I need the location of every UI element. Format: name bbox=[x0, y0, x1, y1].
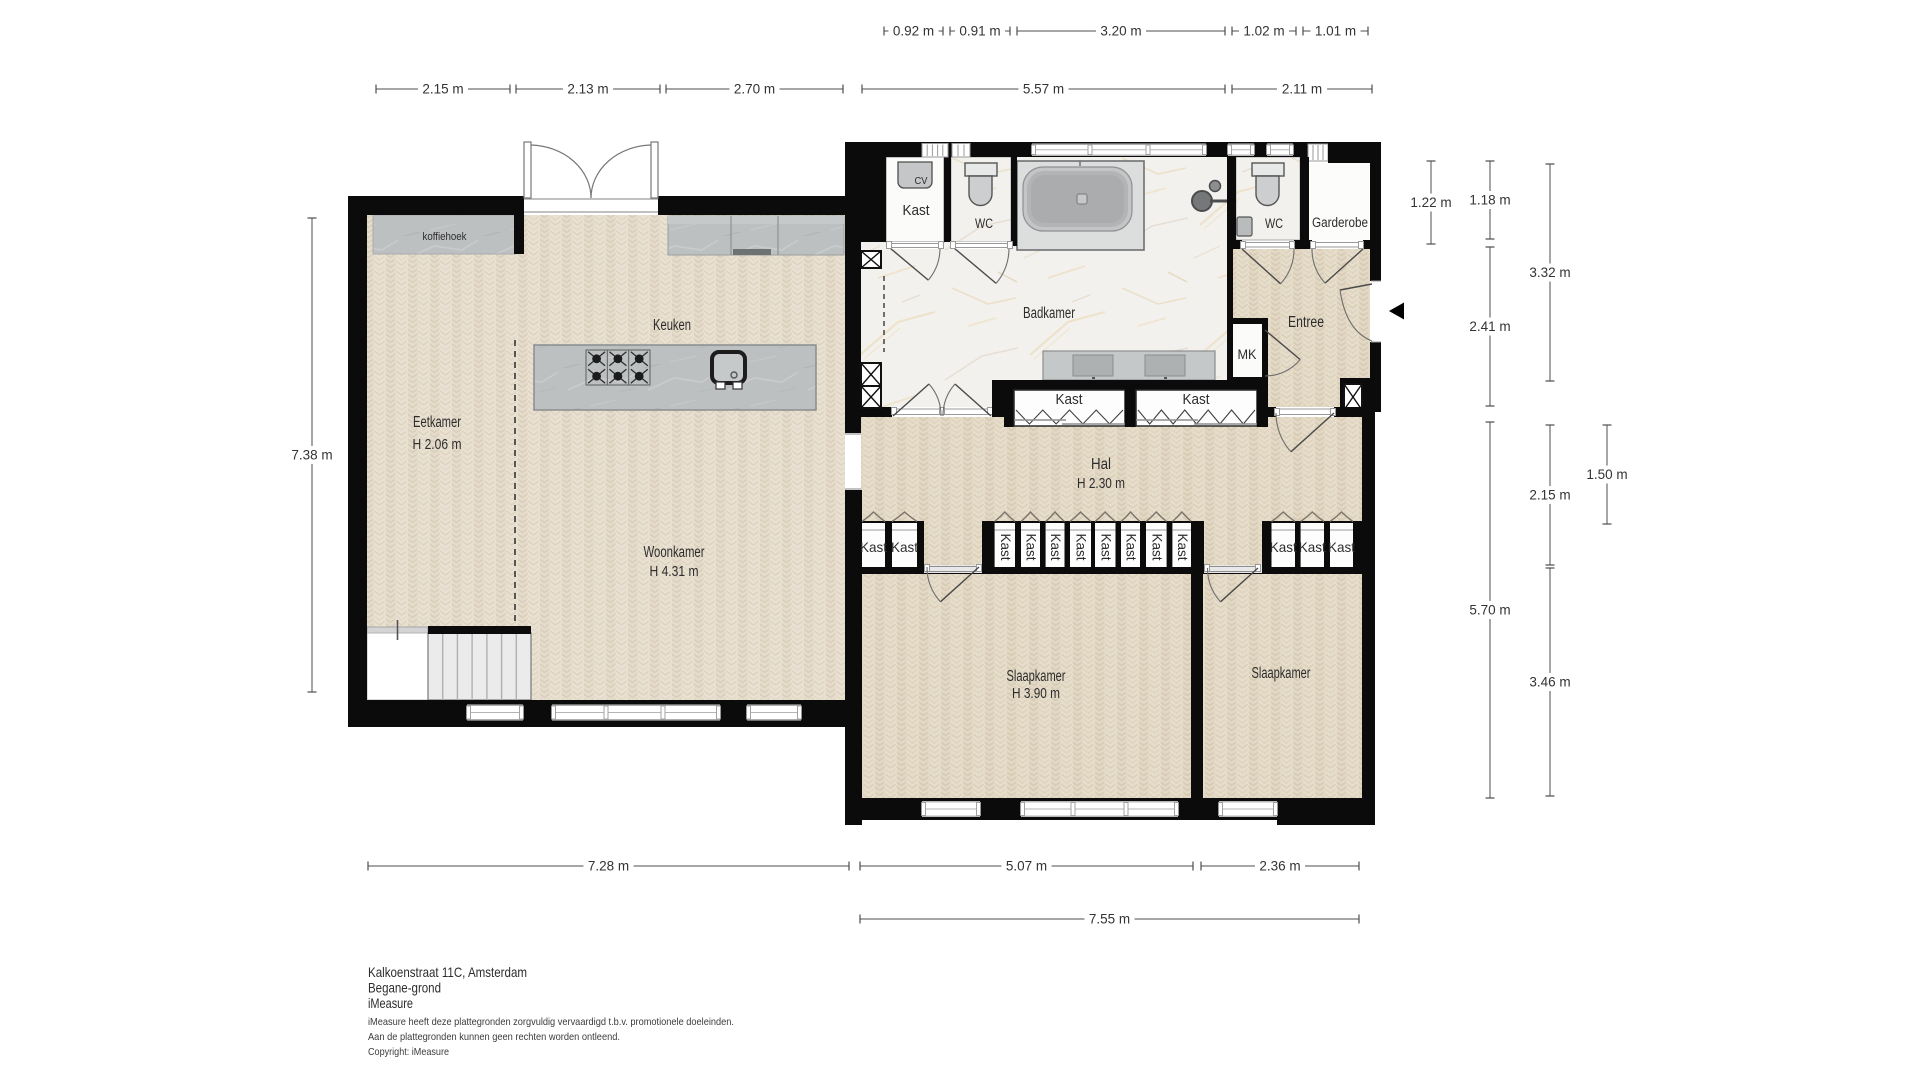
svg-text:Kast: Kast bbox=[1074, 534, 1090, 561]
svg-text:Garderobe: Garderobe bbox=[1312, 215, 1368, 230]
svg-text:2.15 m: 2.15 m bbox=[1529, 488, 1570, 503]
svg-text:iMeasure heeft deze plattegron: iMeasure heeft deze plattegronden zorgvu… bbox=[368, 1017, 734, 1028]
svg-text:Keuken: Keuken bbox=[653, 317, 691, 334]
svg-text:2.41 m: 2.41 m bbox=[1469, 319, 1510, 334]
svg-text:Copyright: iMeasure: Copyright: iMeasure bbox=[368, 1047, 449, 1058]
svg-text:2.36 m: 2.36 m bbox=[1259, 859, 1300, 874]
svg-text:Entree: Entree bbox=[1288, 314, 1324, 331]
svg-text:5.07 m: 5.07 m bbox=[1006, 859, 1047, 874]
svg-text:Kast: Kast bbox=[860, 539, 887, 555]
svg-text:Begane-grond: Begane-grond bbox=[368, 981, 441, 996]
svg-text:H 3.90 m: H 3.90 m bbox=[1012, 685, 1060, 702]
svg-text:5.70 m: 5.70 m bbox=[1469, 603, 1510, 618]
svg-text:Kast: Kast bbox=[1270, 539, 1297, 555]
svg-text:Woonkamer: Woonkamer bbox=[644, 544, 705, 561]
svg-text:Kast: Kast bbox=[1048, 534, 1064, 561]
svg-text:Kast: Kast bbox=[1175, 534, 1191, 561]
svg-text:Kast: Kast bbox=[903, 203, 930, 219]
svg-text:Kast: Kast bbox=[1183, 392, 1210, 408]
svg-text:H 2.06 m: H 2.06 m bbox=[413, 436, 462, 453]
svg-text:0.91 m: 0.91 m bbox=[959, 24, 1000, 39]
svg-text:5.57 m: 5.57 m bbox=[1023, 82, 1064, 97]
svg-text:3.46 m: 3.46 m bbox=[1529, 675, 1570, 690]
svg-text:MK: MK bbox=[1238, 346, 1258, 362]
svg-text:Eetkamer: Eetkamer bbox=[413, 414, 461, 431]
svg-text:Hal: Hal bbox=[1091, 456, 1111, 473]
svg-text:Kast: Kast bbox=[1024, 534, 1040, 561]
svg-text:1.02 m: 1.02 m bbox=[1243, 24, 1284, 39]
svg-text:Kast: Kast bbox=[998, 533, 1014, 560]
svg-text:1.22 m: 1.22 m bbox=[1410, 195, 1451, 210]
svg-text:7.38 m: 7.38 m bbox=[291, 448, 332, 463]
svg-text:Kalkoenstraat 11C, Amsterdam: Kalkoenstraat 11C, Amsterdam bbox=[368, 965, 527, 980]
svg-text:2.11 m: 2.11 m bbox=[1282, 82, 1322, 97]
svg-text:iMeasure: iMeasure bbox=[368, 996, 413, 1011]
svg-text:7.28 m: 7.28 m bbox=[588, 859, 629, 874]
svg-text:3.20 m: 3.20 m bbox=[1100, 24, 1141, 39]
svg-text:H 2.30 m: H 2.30 m bbox=[1077, 475, 1125, 492]
svg-text:Kast: Kast bbox=[1056, 392, 1083, 408]
svg-text:2.15 m: 2.15 m bbox=[422, 82, 463, 97]
svg-text:Kast: Kast bbox=[1124, 534, 1140, 561]
svg-text:H 4.31 m: H 4.31 m bbox=[650, 563, 699, 580]
svg-text:WC: WC bbox=[1265, 216, 1283, 231]
svg-text:2.70 m: 2.70 m bbox=[734, 82, 775, 97]
svg-text:CV: CV bbox=[915, 176, 928, 187]
svg-text:Kast: Kast bbox=[1098, 534, 1114, 561]
svg-text:Slaapkamer: Slaapkamer bbox=[1252, 665, 1311, 682]
svg-text:2.13 m: 2.13 m bbox=[567, 82, 608, 97]
svg-text:1.50 m: 1.50 m bbox=[1586, 467, 1627, 482]
svg-text:1.01 m: 1.01 m bbox=[1315, 24, 1356, 39]
svg-text:Kast: Kast bbox=[891, 539, 918, 555]
svg-text:Aan de plattegronden kunnen ge: Aan de plattegronden kunnen geen rechten… bbox=[368, 1032, 620, 1043]
svg-text:3.32 m: 3.32 m bbox=[1529, 265, 1570, 280]
svg-text:WC: WC bbox=[975, 216, 993, 231]
svg-text:7.55 m: 7.55 m bbox=[1089, 912, 1130, 927]
svg-text:Kast: Kast bbox=[1299, 539, 1326, 555]
svg-text:koffiehoek: koffiehoek bbox=[423, 231, 467, 243]
svg-text:1.18 m: 1.18 m bbox=[1469, 193, 1510, 208]
svg-text:0.92 m: 0.92 m bbox=[893, 24, 934, 39]
svg-text:Badkamer: Badkamer bbox=[1023, 305, 1075, 322]
svg-text:Slaapkamer: Slaapkamer bbox=[1007, 668, 1066, 685]
svg-text:Kast: Kast bbox=[1328, 539, 1355, 555]
svg-text:Kast: Kast bbox=[1149, 534, 1165, 561]
